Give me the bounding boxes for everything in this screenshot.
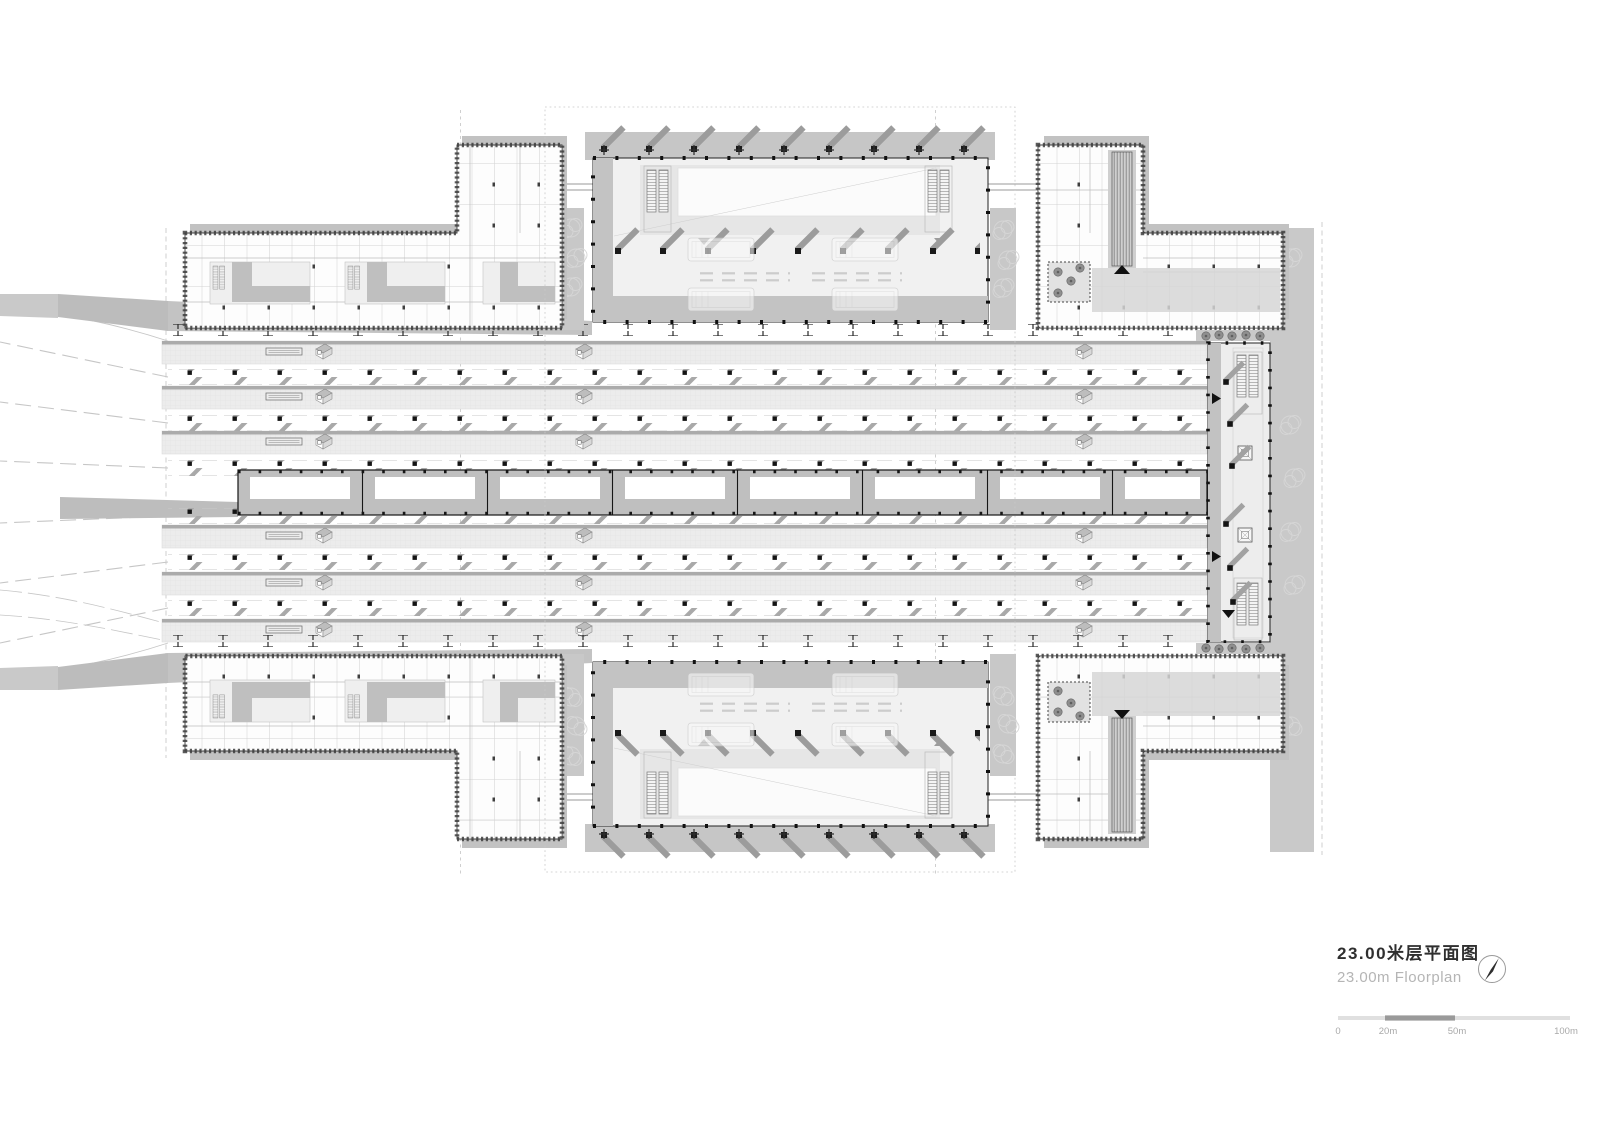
north-station-block (0, 124, 1302, 341)
south-station-block (0, 643, 1302, 860)
floor-openings (250, 477, 1200, 499)
platform-strip (162, 572, 1207, 595)
drawing-title-en: 23.00m Floorplan (1337, 969, 1462, 986)
scale-label: 0 (1335, 1026, 1340, 1037)
floorplan-page: 23.00米层平面图 23.00m Floorplan 0 20m 50m 10… (0, 0, 1600, 1132)
scale-label: 100m (1554, 1026, 1578, 1037)
platform-strip (162, 431, 1207, 454)
scale-label: 50m (1448, 1026, 1467, 1037)
scale-bar: 0 20m 50m 100m (1335, 1015, 1578, 1037)
title-block: 23.00米层平面图 23.00m Floorplan (1337, 943, 1480, 986)
floorplan-canvas: 23.00米层平面图 23.00m Floorplan 0 20m 50m 10… (0, 0, 1600, 1132)
drawing-title-cn: 23.00米层平面图 (1337, 943, 1480, 963)
east-concourse (1208, 343, 1270, 642)
platform-strip (162, 386, 1207, 409)
platform-strip (162, 341, 1207, 364)
platform-strip (162, 525, 1207, 548)
elevator (1238, 528, 1252, 542)
scale-label: 20m (1379, 1026, 1398, 1037)
scale-bar-segment (1385, 1015, 1455, 1020)
central-transfer-band (238, 470, 1207, 515)
track-fan-west (0, 308, 168, 676)
north-arrow-icon (1479, 956, 1506, 983)
